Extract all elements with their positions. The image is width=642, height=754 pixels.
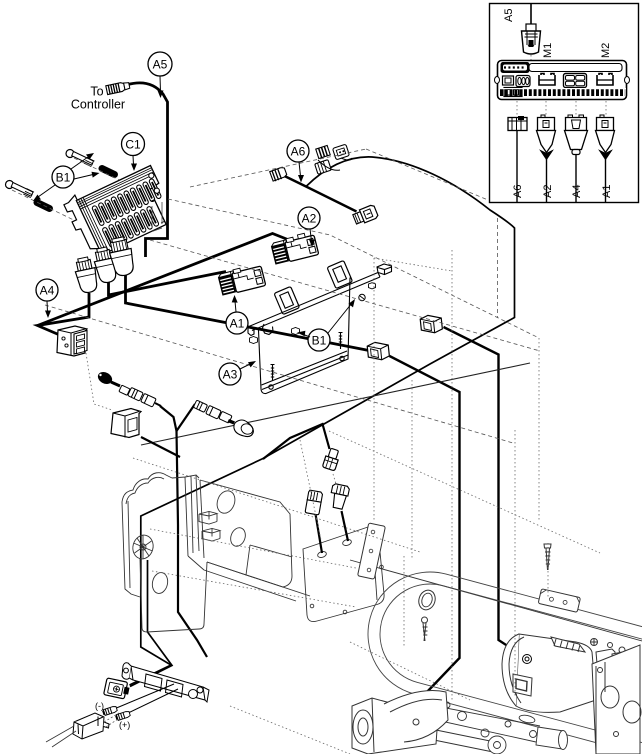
svg-text:A4: A4 <box>571 185 583 198</box>
svg-text:(+): (+) <box>119 720 130 730</box>
svg-text:(-): (-) <box>95 701 104 711</box>
svg-text:A1: A1 <box>601 185 613 198</box>
svg-text:C1: C1 <box>125 138 141 152</box>
svg-text:A1: A1 <box>230 317 245 331</box>
svg-text:A5: A5 <box>503 9 515 22</box>
svg-text:Controller: Controller <box>71 98 125 112</box>
svg-text:B1: B1 <box>56 171 71 185</box>
svg-text:A2: A2 <box>302 212 317 226</box>
svg-text:To: To <box>90 85 103 99</box>
svg-text:A6: A6 <box>512 185 524 198</box>
svg-text:A6: A6 <box>291 145 306 159</box>
svg-text:M2: M2 <box>600 43 612 58</box>
svg-text:A3: A3 <box>223 368 238 382</box>
svg-text:B1: B1 <box>312 334 327 348</box>
svg-text:A2: A2 <box>542 185 554 198</box>
svg-text:A4: A4 <box>40 284 55 298</box>
svg-text:M1: M1 <box>542 43 554 58</box>
svg-text:A5: A5 <box>153 58 168 72</box>
